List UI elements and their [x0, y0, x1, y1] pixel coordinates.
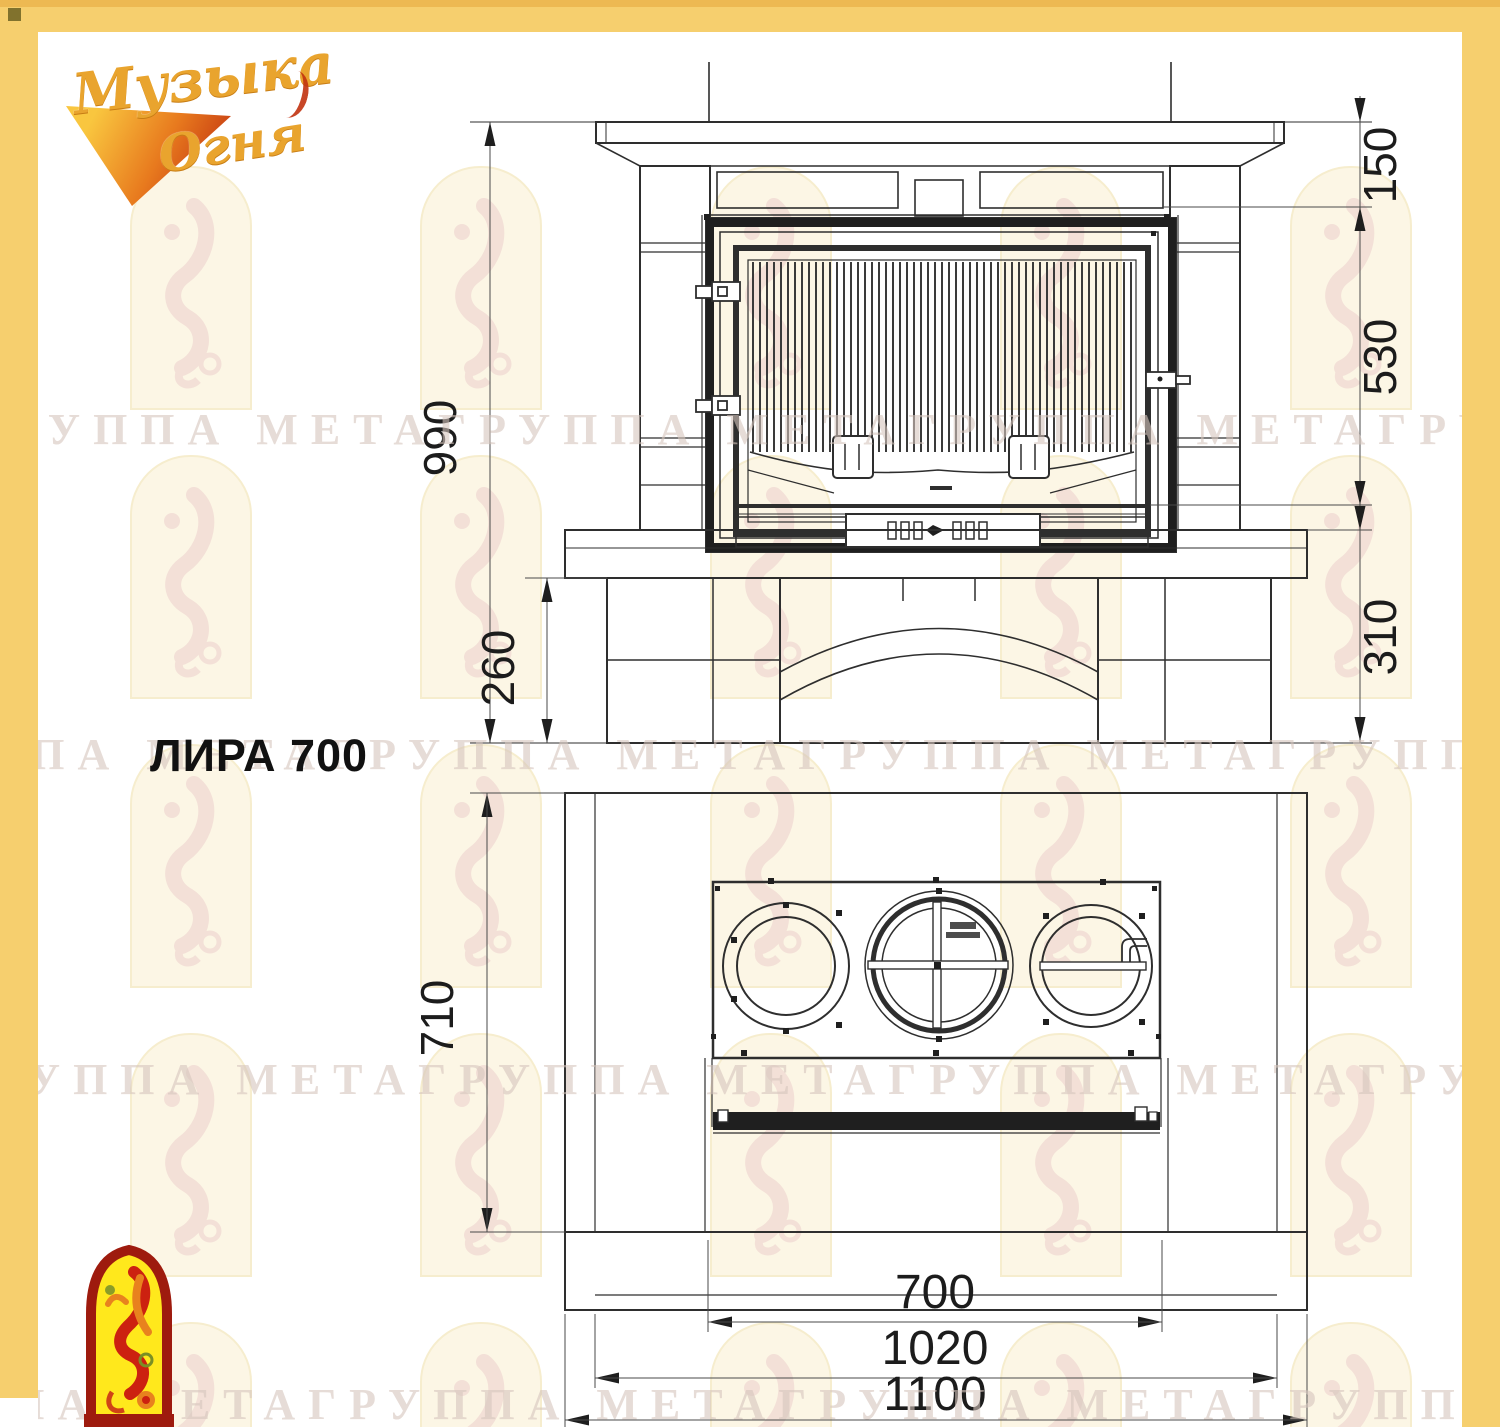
dim-mantel-height: 150: [1354, 127, 1406, 204]
dim-firebox-height: 530: [1354, 319, 1406, 396]
dim-firebox-width: 700: [895, 1266, 975, 1319]
door-latch: [1146, 372, 1190, 388]
firebird-icon: [82, 1242, 176, 1427]
dim-base-height: 310: [1354, 599, 1406, 676]
dim-depth: 710: [411, 980, 463, 1057]
technical-drawing: 990 260 150 530 310 710: [0, 0, 1500, 1427]
dim-overall-height: 990: [414, 400, 466, 477]
plan-view: [565, 793, 1307, 1310]
left-flue-outlet: [723, 903, 849, 1029]
right-flue-outlet: [1030, 905, 1152, 1027]
center-flue-collar: [865, 891, 1013, 1039]
front-elevation-view: [470, 62, 1372, 743]
dimension-arrows: [482, 98, 1366, 1426]
plan-front-band: [705, 1058, 1168, 1232]
dim-overall-width: 1100: [883, 1368, 986, 1421]
corner-chip: [8, 8, 21, 21]
firebox-insert: [696, 214, 1190, 552]
dim-pedestal-height: 260: [472, 630, 524, 707]
firebird-arch-logo: [82, 1242, 176, 1427]
model-name-label: ЛИРА 700: [150, 730, 368, 782]
pedestal: [607, 578, 1271, 743]
brand-logo: Музыка Огня: [58, 44, 318, 204]
catalog-page: 990 260 150 530 310 710: [0, 0, 1500, 1427]
